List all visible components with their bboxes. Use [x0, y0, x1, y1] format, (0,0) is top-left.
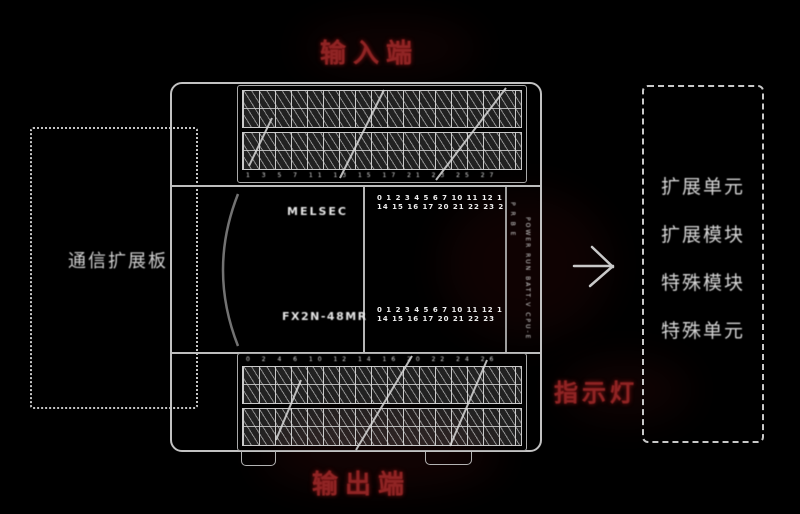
input-terminal-strip: 1 3 5 7 11 13 15 17 21 23 25 27 [237, 85, 527, 183]
input-led-row: 14 15 16 17 20 21 22 23 24 [377, 203, 503, 212]
communication-expansion-board-text: 通信扩展板 [68, 247, 168, 273]
output-terminal-row [242, 366, 522, 404]
special-module-item: 特殊模块 [661, 271, 745, 296]
special-unit-item: 特殊单元 [661, 319, 745, 344]
input-terminal-row [242, 132, 522, 170]
input-terminal-numbers: 1 3 5 7 11 13 15 17 21 23 25 27 [246, 172, 518, 181]
plc-structure-diagram: 输入端 输出端 指示灯 通信扩展板 扩展单元 扩展模块 特殊模块 特殊单元 1 … [0, 0, 800, 514]
output-led-block: 0 1 2 3 4 5 6 7 10 11 12 13 14 15 16 17 … [377, 306, 503, 332]
output-terminal-strip: 0 2 4 6 10 12 14 16 20 22 24 26 [237, 353, 527, 451]
status-led-column: P R B E [509, 202, 516, 272]
mounting-tab [241, 451, 276, 466]
expansion-options-box: 扩展单元 扩展模块 特殊模块 特殊单元 [642, 85, 764, 443]
indicator-light-label: 指示灯 [554, 373, 638, 408]
mounting-tab [425, 452, 472, 465]
plc-model-text: FX2N-48MR [282, 310, 368, 323]
plc-brand-text: MELSEC [287, 205, 348, 218]
output-terminal-numbers: 0 2 4 6 10 12 14 16 20 22 24 26 [246, 356, 518, 365]
input-led-row: 0 1 2 3 4 5 6 7 10 11 12 13 [377, 194, 503, 203]
expansion-module-item: 扩展模块 [661, 223, 745, 248]
input-terminal-label: 输入端 [320, 33, 419, 70]
output-terminal-label: 输出端 [312, 464, 411, 501]
output-led-row: 0 1 2 3 4 5 6 7 10 11 12 13 [377, 306, 503, 315]
output-led-row: 14 15 16 17 20 21 22 23 [377, 315, 503, 324]
panel-divider-line [172, 185, 540, 187]
plc-unit: 1 3 5 7 11 13 15 17 21 23 25 27 MELSEC F… [170, 82, 542, 452]
input-terminal-row [242, 90, 522, 128]
input-led-block: 0 1 2 3 4 5 6 7 10 11 12 13 14 15 16 17 … [377, 194, 503, 220]
panel-divider-line [363, 187, 365, 352]
status-led-column: POWER RUN BATT.V CPU-E [524, 217, 531, 337]
output-terminal-row [242, 408, 522, 446]
expansion-unit-item: 扩展单元 [661, 175, 745, 200]
panel-divider-line [505, 187, 507, 352]
